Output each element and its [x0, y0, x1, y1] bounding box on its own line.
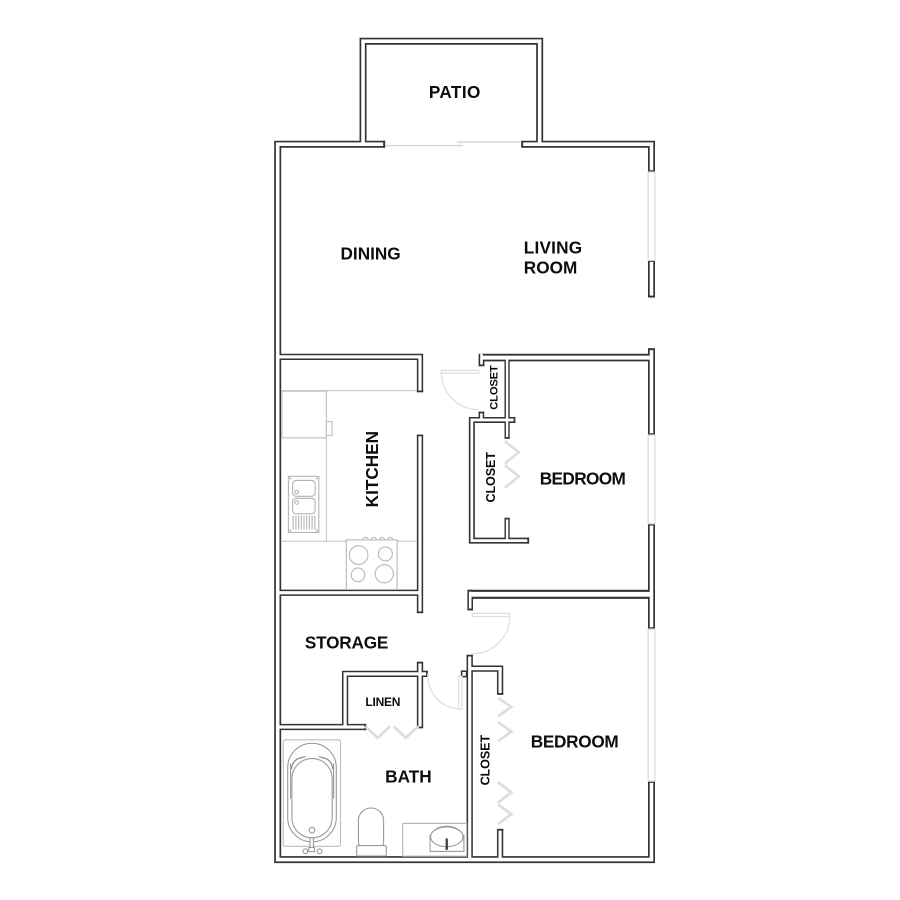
- svg-text:CLOSET: CLOSET: [479, 735, 493, 786]
- svg-text:ROOM: ROOM: [524, 258, 577, 278]
- svg-text:BEDROOM: BEDROOM: [540, 469, 626, 489]
- svg-text:LINEN: LINEN: [365, 695, 400, 709]
- svg-text:LIVING: LIVING: [524, 237, 583, 257]
- svg-text:KITCHEN: KITCHEN: [362, 431, 382, 507]
- svg-text:PATIO: PATIO: [429, 82, 481, 102]
- svg-text:DINING: DINING: [341, 243, 401, 263]
- svg-text:BATH: BATH: [385, 766, 431, 786]
- svg-text:CLOSET: CLOSET: [488, 365, 500, 410]
- svg-text:BEDROOM: BEDROOM: [531, 732, 619, 752]
- svg-text:STORAGE: STORAGE: [305, 633, 388, 653]
- svg-text:CLOSET: CLOSET: [484, 452, 498, 503]
